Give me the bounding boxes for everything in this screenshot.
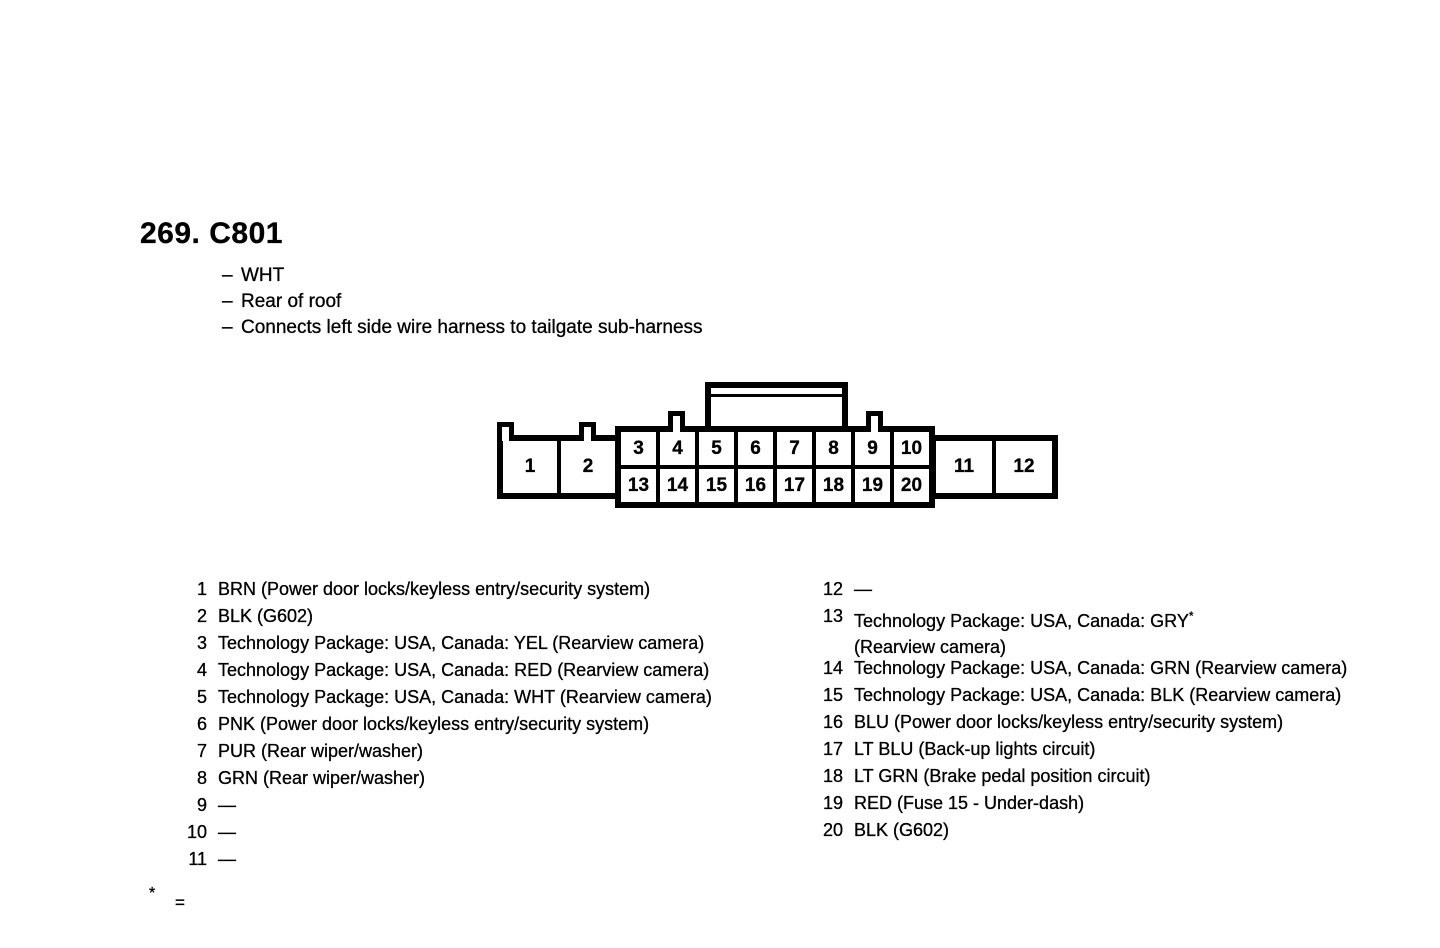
- pin-description-text: Technology Package: USA, Canada: GRY: [854, 611, 1189, 631]
- pin-cavity-4: 4: [660, 432, 695, 465]
- pin-cavity-14: 14: [660, 469, 695, 502]
- pin-list-item: 14 Technology Package: USA, Canada: GRN …: [820, 655, 1347, 682]
- pin-list-item: 4 Technology Package: USA, Canada: RED (…: [184, 657, 712, 684]
- pin-list-item: 17 LT BLU (Back-up lights circuit): [820, 736, 1347, 763]
- pin-number: 15: [820, 682, 843, 709]
- dash-bullet: –: [222, 315, 241, 341]
- pin-list-item: 8 GRN (Rear wiper/washer): [184, 765, 712, 792]
- pin-cavity-2: 2: [557, 441, 615, 493]
- lock-tab-ridge: [711, 394, 842, 397]
- pin-number: 18: [820, 763, 843, 790]
- pin-cavity-6: 6: [738, 432, 773, 465]
- pin-list-item: 9 —: [184, 792, 712, 819]
- pin-cavity-11: 11: [936, 441, 992, 493]
- footnote-asterisk-ref: *: [1189, 609, 1194, 623]
- pin-cavity-10: 10: [894, 432, 929, 465]
- pin-number: 14: [820, 655, 843, 682]
- pin-number: 2: [184, 603, 207, 630]
- pin-description: —: [218, 846, 236, 873]
- pin-description: Technology Package: USA, Canada: YEL (Re…: [218, 630, 704, 657]
- note-line: – Connects left side wire harness to tai…: [222, 315, 703, 341]
- pin-cavity-17: 17: [777, 469, 812, 502]
- connector-key-notch: [866, 411, 883, 432]
- connector-center-block: 3 4 5 6 7 8 9 10 13 14 15 16 17 18 19 20: [615, 426, 935, 508]
- pin-description: BLK (G602): [218, 603, 313, 630]
- pin-cavity-8: 8: [816, 432, 851, 465]
- pin-number: 4: [184, 657, 207, 684]
- pin-cavity-3: 3: [621, 432, 656, 465]
- pin-number: 7: [184, 738, 207, 765]
- pin-description: Technology Package: USA, Canada: BLK (Re…: [854, 682, 1341, 709]
- pin-list-right: 12 — 13 Technology Package: USA, Canada:…: [820, 576, 1347, 844]
- pin-list-item: 7 PUR (Rear wiper/washer): [184, 738, 712, 765]
- connector-key-notch: [579, 422, 596, 441]
- pin-number: 10: [184, 819, 207, 846]
- pin-list-item: 2 BLK (G602): [184, 603, 712, 630]
- pin-description: RED (Fuse 15 - Under-dash): [854, 790, 1084, 817]
- pin-list-item: 10 —: [184, 819, 712, 846]
- note-text: WHT: [241, 263, 284, 289]
- pin-list-item: 15 Technology Package: USA, Canada: BLK …: [820, 682, 1347, 709]
- pin-number: 20: [820, 817, 843, 844]
- pin-list-item: 1 BRN (Power door locks/keyless entry/se…: [184, 576, 712, 603]
- pin-list-item: 11 —: [184, 846, 712, 873]
- pin-list-item: 6 PNK (Power door locks/keyless entry/se…: [184, 711, 712, 738]
- pin-list-item: 16 BLU (Power door locks/keyless entry/s…: [820, 709, 1347, 736]
- pin-description: BLU (Power door locks/keyless entry/secu…: [854, 709, 1283, 736]
- note-line: – Rear of roof: [222, 289, 703, 315]
- pin-cavity-5: 5: [699, 432, 734, 465]
- dash-bullet: –: [222, 289, 241, 315]
- pin-list-item: 18 LT GRN (Brake pedal position circuit): [820, 763, 1347, 790]
- pin-number: 12: [820, 576, 843, 603]
- section-title: 269. C801: [140, 217, 283, 251]
- pin-list-item: 20 BLK (G602): [820, 817, 1347, 844]
- pin-description: —: [218, 819, 236, 846]
- footnote-equals: =: [175, 893, 185, 913]
- pin-description: BRN (Power door locks/keyless entry/secu…: [218, 576, 650, 603]
- pin-cavity-18: 18: [816, 469, 851, 502]
- document-page: 269. C801 – WHT – Rear of roof – Connect…: [0, 0, 1440, 948]
- pin-number: 3: [184, 630, 207, 657]
- pin-description: Technology Package: USA, Canada: WHT (Re…: [218, 684, 712, 711]
- pin-number: 17: [820, 736, 843, 763]
- pin-number: 13: [820, 603, 843, 655]
- pin-cavity-12: 12: [992, 441, 1052, 493]
- pin-cavity-9: 9: [855, 432, 890, 465]
- pin-cavity-13: 13: [621, 469, 656, 502]
- pin-description: LT GRN (Brake pedal position circuit): [854, 763, 1150, 790]
- pin-list-item: 13 Technology Package: USA, Canada: GRY*…: [820, 603, 1347, 655]
- note-text: Rear of roof: [241, 289, 341, 315]
- pin-description: GRN (Rear wiper/washer): [218, 765, 425, 792]
- connector-key-notch: [668, 411, 685, 432]
- pin-description: PNK (Power door locks/keyless entry/secu…: [218, 711, 649, 738]
- pin-description: LT BLU (Back-up lights circuit): [854, 736, 1095, 763]
- pin-list-item: 5 Technology Package: USA, Canada: WHT (…: [184, 684, 712, 711]
- pin-list-item: 12 —: [820, 576, 1347, 603]
- connector-lock-tab: [705, 382, 848, 432]
- note-line: – WHT: [222, 263, 703, 289]
- pin-number: 19: [820, 790, 843, 817]
- pin-cavity-20: 20: [894, 469, 929, 502]
- pin-cavity-19: 19: [855, 469, 890, 502]
- pin-description: —: [218, 792, 236, 819]
- pin-cavity-16: 16: [738, 469, 773, 502]
- connector-right-block: 11 12: [930, 435, 1058, 499]
- pin-description: BLK (G602): [854, 817, 949, 844]
- pin-number: 1: [184, 576, 207, 603]
- pin-number: 8: [184, 765, 207, 792]
- connector-key-notch: [497, 422, 514, 441]
- footnote-asterisk: *: [149, 885, 155, 903]
- pin-cavity-15: 15: [699, 469, 734, 502]
- pin-description: PUR (Rear wiper/washer): [218, 738, 423, 765]
- pin-number: 11: [184, 846, 207, 873]
- pin-number: 9: [184, 792, 207, 819]
- pin-cavity-7: 7: [777, 432, 812, 465]
- pin-list-left: 1 BRN (Power door locks/keyless entry/se…: [184, 576, 712, 873]
- pin-description: —: [854, 576, 872, 603]
- pin-description: Technology Package: USA, Canada: RED (Re…: [218, 657, 709, 684]
- pin-list-item: 3 Technology Package: USA, Canada: YEL (…: [184, 630, 712, 657]
- connector-notes: – WHT – Rear of roof – Connects left sid…: [222, 263, 703, 341]
- pin-list-item: 19 RED (Fuse 15 - Under-dash): [820, 790, 1347, 817]
- pin-description: Technology Package: USA, Canada: GRN (Re…: [854, 655, 1347, 682]
- footnote-line1: The shielded wires have a heat-shrunk tu…: [198, 944, 1252, 948]
- footnote-text: The shielded wires have a heat-shrunk tu…: [198, 890, 1252, 948]
- pin-number: 5: [184, 684, 207, 711]
- pin-cavity-1: 1: [503, 441, 557, 493]
- dash-bullet: –: [222, 263, 241, 289]
- pin-number: 16: [820, 709, 843, 736]
- pin-description: Technology Package: USA, Canada: GRY*(Re…: [854, 603, 1194, 655]
- pin-number: 6: [184, 711, 207, 738]
- connector-left-block: 1 2: [497, 435, 621, 499]
- note-text: Connects left side wire harness to tailg…: [241, 315, 703, 341]
